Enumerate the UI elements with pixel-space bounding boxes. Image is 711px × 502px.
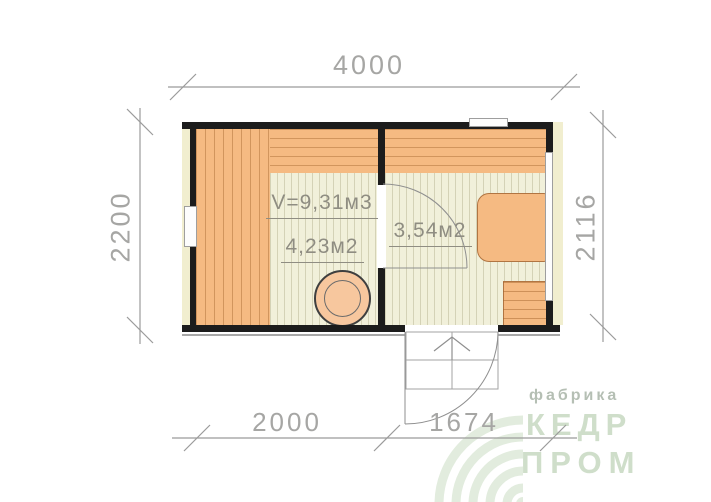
floor-plan-canvas: 4000 2200 2116 2000 1674 V=9,31м3 4,23м2… [0, 0, 711, 502]
dimension-right-value: 2116 [571, 167, 602, 287]
hall-area-label: 3,54м2 [389, 219, 472, 247]
sauna-volume-label-wrap: V=9,31м3 [258, 191, 386, 219]
sauna-area-label-wrap: 4,23м2 [262, 235, 382, 263]
dimension-bottom-right-value: 1674 [404, 407, 524, 438]
sauna-area-label: 4,23м2 [281, 235, 364, 263]
hall-area-label-wrap: 3,54м2 [380, 219, 480, 247]
dimension-left-value: 2200 [106, 167, 137, 287]
sauna-volume-label: V=9,31м3 [266, 191, 377, 219]
dimension-bottom-left-value: 2000 [227, 407, 347, 438]
dimension-top-value: 4000 [309, 50, 429, 81]
